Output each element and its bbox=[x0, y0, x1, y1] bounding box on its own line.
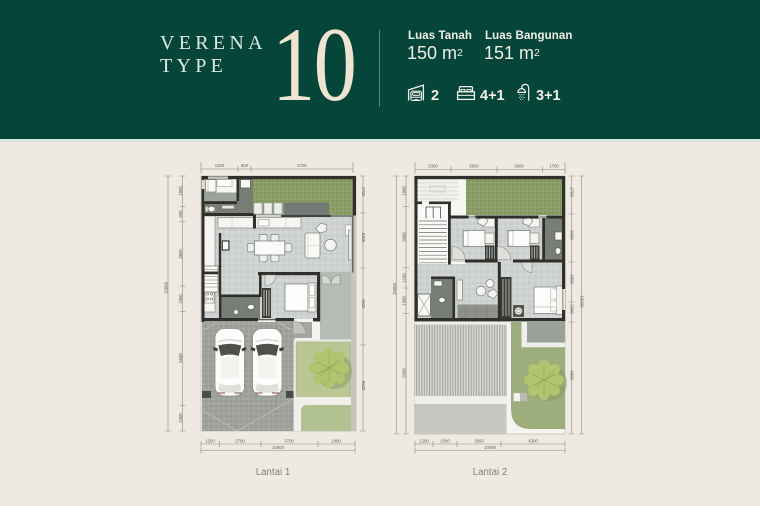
svg-text:5500: 5500 bbox=[361, 381, 366, 391]
svg-text:1200: 1200 bbox=[402, 273, 407, 283]
svg-text:3600: 3600 bbox=[570, 230, 575, 240]
svg-text:2: 2 bbox=[431, 88, 439, 104]
svg-text:4300: 4300 bbox=[528, 439, 538, 444]
svg-text:5500: 5500 bbox=[178, 353, 183, 363]
svg-text:1500: 1500 bbox=[178, 413, 183, 423]
svg-text:3600: 3600 bbox=[514, 164, 524, 169]
svg-text:1500: 1500 bbox=[361, 299, 366, 309]
svg-text:1200: 1200 bbox=[205, 439, 215, 444]
svg-text:3700: 3700 bbox=[284, 439, 294, 444]
svg-text:4000: 4000 bbox=[570, 370, 575, 380]
svg-text:1500: 1500 bbox=[440, 439, 450, 444]
svg-text:10000: 10000 bbox=[484, 445, 497, 450]
svg-text:2700: 2700 bbox=[235, 439, 245, 444]
svg-text:2400: 2400 bbox=[331, 439, 341, 444]
svg-text:900: 900 bbox=[178, 210, 183, 218]
svg-text:Lantai 2: Lantai 2 bbox=[473, 467, 507, 478]
svg-text:1500: 1500 bbox=[178, 294, 183, 304]
svg-text:10000: 10000 bbox=[272, 445, 285, 450]
svg-text:15000: 15000 bbox=[164, 281, 169, 294]
svg-text:Lantai 1: Lantai 1 bbox=[256, 467, 290, 478]
svg-text:6700: 6700 bbox=[297, 163, 307, 168]
svg-text:1800: 1800 bbox=[178, 186, 183, 196]
svg-text:1800: 1800 bbox=[402, 186, 407, 196]
svg-text:2700: 2700 bbox=[570, 187, 575, 197]
svg-text:4+1: 4+1 bbox=[480, 88, 505, 104]
svg-text:1500: 1500 bbox=[402, 296, 407, 306]
svg-text:15000: 15000 bbox=[580, 296, 585, 309]
svg-text:2800: 2800 bbox=[570, 274, 575, 284]
svg-text:2950: 2950 bbox=[469, 164, 479, 169]
svg-text:2700: 2700 bbox=[361, 187, 366, 197]
svg-text:15000: 15000 bbox=[392, 282, 397, 295]
svg-text:5300: 5300 bbox=[361, 233, 366, 243]
svg-text:3+1: 3+1 bbox=[536, 88, 561, 104]
svg-text:1400: 1400 bbox=[215, 163, 225, 168]
svg-text:3800: 3800 bbox=[178, 249, 183, 259]
svg-text:5500: 5500 bbox=[402, 368, 407, 378]
svg-text:900: 900 bbox=[241, 163, 249, 168]
svg-text:3000: 3000 bbox=[474, 439, 484, 444]
svg-text:1500: 1500 bbox=[570, 304, 575, 314]
svg-text:2350: 2350 bbox=[428, 164, 438, 169]
svg-text:1700: 1700 bbox=[549, 164, 559, 169]
svg-text:3600: 3600 bbox=[402, 232, 407, 242]
svg-text:1200: 1200 bbox=[419, 439, 429, 444]
